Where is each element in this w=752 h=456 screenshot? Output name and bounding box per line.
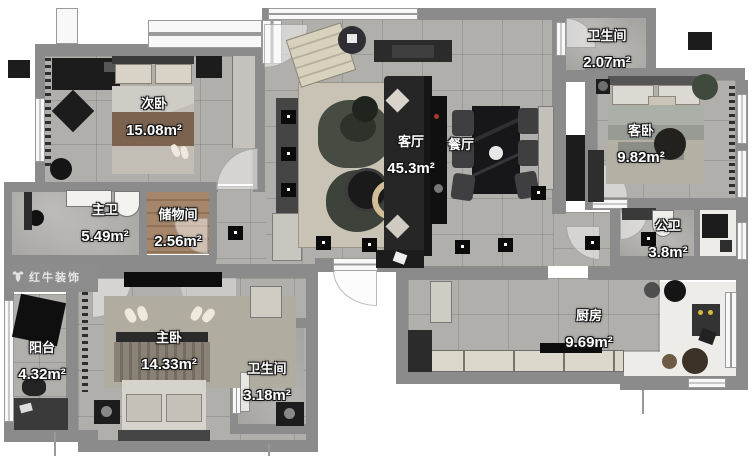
room-label-guest: 客卧 9.82m² bbox=[617, 123, 665, 166]
room-label-bedroom2: 次卧 15.08m² bbox=[126, 96, 182, 139]
pantry-plant-a bbox=[682, 348, 708, 374]
wall-entry-a bbox=[315, 258, 335, 272]
range-knob-a bbox=[698, 310, 703, 315]
pantry-pot-b bbox=[644, 282, 660, 298]
room-name: 客卧 bbox=[617, 123, 665, 139]
master-tv-console bbox=[124, 272, 222, 287]
room-name: 卫生间 bbox=[583, 28, 631, 44]
room-name: 储物间 bbox=[154, 207, 202, 223]
bay-window-bedroom2 bbox=[148, 20, 262, 48]
dining-cabinet bbox=[538, 106, 554, 190]
range-knob-b bbox=[708, 310, 713, 315]
floor-plan: 红牛装饰 次卧 15.08m² 主卫 5.49m² 储物间 2.56m² 客厅 … bbox=[0, 0, 752, 456]
room-area: 2.56m² bbox=[154, 233, 202, 250]
guest-bed-headboard bbox=[608, 76, 704, 85]
room-label-masterbath: 主卫 5.49m² bbox=[81, 202, 129, 245]
room-label-bath-bottom: 卫生间 3.18m² bbox=[243, 361, 291, 404]
guest-lamp bbox=[598, 81, 608, 91]
spotlight-2 bbox=[281, 147, 296, 161]
window-outside-topleft bbox=[56, 8, 78, 44]
room-name: 客厅 bbox=[387, 134, 435, 150]
room-name: 阳台 bbox=[18, 340, 66, 356]
room-name: 次卧 bbox=[126, 96, 182, 112]
spotlight-4 bbox=[228, 226, 243, 240]
guest-curtain bbox=[729, 86, 735, 198]
spotlight-3 bbox=[281, 183, 296, 197]
room-area: 15.08m² bbox=[126, 122, 182, 139]
room-area: 2.07m² bbox=[583, 54, 631, 71]
master-headboard bbox=[118, 430, 210, 441]
console-knob bbox=[434, 184, 443, 193]
window-guest-b bbox=[737, 150, 747, 198]
room-area: 3.18m² bbox=[243, 387, 291, 404]
pouf-bedroom2 bbox=[50, 158, 72, 180]
guest-wardrobe bbox=[588, 150, 604, 202]
pantry-pot-a bbox=[664, 280, 686, 302]
master-lamp-right bbox=[284, 408, 295, 419]
side-table-item bbox=[347, 34, 357, 43]
sideboard-top-inner bbox=[392, 45, 434, 58]
bed2-headboard bbox=[112, 56, 194, 64]
room-name: 主卧 bbox=[141, 330, 197, 346]
window-bedroom2-left bbox=[35, 98, 45, 162]
door-bath-top bbox=[556, 22, 566, 56]
wall-kitchen-right bbox=[736, 280, 748, 390]
master-curtain bbox=[82, 292, 88, 392]
room-name: 卫生间 bbox=[243, 361, 291, 377]
master-dresser bbox=[250, 286, 282, 318]
room-label-storage: 储物间 2.56m² bbox=[154, 207, 202, 250]
wardrobe-bedroom2 bbox=[232, 56, 255, 148]
room-name: 厨房 bbox=[565, 308, 613, 324]
master-pillow-b bbox=[166, 394, 202, 422]
watermark-brand: 红牛装饰 bbox=[29, 269, 81, 285]
console-red-dot bbox=[434, 114, 439, 119]
shower-rail-masterbath bbox=[24, 192, 32, 230]
room-area: 45.3m² bbox=[387, 160, 435, 177]
room-name: 餐厅 bbox=[448, 137, 474, 153]
room-area: 9.69m² bbox=[565, 334, 613, 351]
nightstand-bedroom2 bbox=[196, 56, 222, 78]
dining-chair-1 bbox=[452, 110, 474, 136]
dining-chair-3 bbox=[450, 173, 475, 202]
window-balcony bbox=[4, 300, 14, 422]
dimension-stub-a bbox=[54, 432, 56, 456]
window-kitchen-right bbox=[725, 292, 737, 368]
bed2-pillow-right bbox=[155, 64, 192, 84]
window-publicbath bbox=[737, 222, 747, 260]
room-label-bath-top: 卫生间 2.07m² bbox=[583, 28, 631, 71]
window-living-top bbox=[268, 8, 418, 20]
hall-tall-cabinet bbox=[566, 135, 585, 201]
ac-unit-left bbox=[8, 60, 30, 78]
side-pouf-living bbox=[352, 96, 378, 122]
spotlight-1 bbox=[281, 110, 296, 124]
dining-chair-4 bbox=[518, 108, 540, 134]
wall-bathtop-top bbox=[556, 8, 656, 18]
wall-kitchen-top-a bbox=[396, 266, 548, 280]
guest-plant bbox=[692, 74, 718, 100]
room-name: 公卫 bbox=[648, 218, 687, 234]
spotlight-7 bbox=[455, 240, 470, 254]
room-label-living: 客厅 45.3m² bbox=[387, 134, 435, 177]
room-area: 3.8m² bbox=[648, 244, 687, 261]
master-lamp-left bbox=[101, 406, 112, 417]
spotlight-9 bbox=[531, 186, 546, 200]
room-name: 主卫 bbox=[81, 202, 129, 218]
curtain-bedroom2 bbox=[45, 58, 51, 166]
spotlight-10 bbox=[585, 236, 600, 250]
wall-masterbath-left bbox=[4, 182, 12, 266]
room-area: 5.49m² bbox=[81, 228, 129, 245]
pantry-plant-b bbox=[662, 354, 677, 369]
room-label-publicbath: 公卫 3.8m² bbox=[648, 218, 687, 261]
balcony-cabinet bbox=[14, 398, 68, 430]
kitchen-fridge bbox=[430, 281, 452, 323]
room-label-master: 主卧 14.33m² bbox=[141, 330, 197, 373]
wall-kitchen-top-b bbox=[588, 266, 748, 280]
wall-kitchen-left bbox=[396, 266, 408, 378]
window-guest-a bbox=[737, 94, 747, 144]
wall-storage-right bbox=[209, 182, 217, 260]
room-label-dining: 餐厅 bbox=[448, 137, 474, 153]
spotlight-6 bbox=[362, 238, 377, 252]
dimension-stub-c bbox=[642, 390, 644, 414]
annex-washer bbox=[702, 214, 728, 238]
dimension-stub-b bbox=[268, 444, 270, 456]
wall-publicbath-left bbox=[610, 208, 620, 260]
kitchen-corner-cabinet bbox=[408, 330, 432, 372]
room-area: 9.82m² bbox=[617, 149, 665, 166]
balcony-rack bbox=[12, 294, 66, 347]
ac-unit-topright bbox=[688, 32, 712, 50]
spotlight-5 bbox=[316, 236, 331, 250]
room-label-balcony: 阳台 4.32m² bbox=[18, 340, 66, 383]
bull-logo-icon bbox=[11, 270, 25, 284]
entry-door-arc bbox=[333, 270, 377, 306]
wall-kitchen-bottom-a bbox=[396, 370, 624, 384]
annex-fixture bbox=[720, 240, 732, 252]
kitchen-counter bbox=[414, 350, 624, 372]
room-area: 14.33m² bbox=[141, 356, 197, 373]
bed2-pillow-left bbox=[115, 64, 152, 84]
window-kitchen-bottom bbox=[688, 378, 726, 388]
master-pillow-a bbox=[126, 394, 162, 422]
watermark-band: 红牛装饰 bbox=[4, 262, 98, 292]
dining-chair-5 bbox=[518, 140, 540, 166]
room-label-kitchen: 厨房 9.69m² bbox=[565, 308, 613, 351]
wall-publicbath-divider bbox=[694, 208, 700, 258]
wall-master-bottom bbox=[78, 440, 318, 452]
room-area: 4.32m² bbox=[18, 366, 66, 383]
wall-kitchen-bottom-b bbox=[620, 376, 748, 390]
spotlight-8 bbox=[498, 238, 513, 252]
dining-vase bbox=[489, 146, 503, 160]
wall-storage-left bbox=[139, 182, 147, 258]
